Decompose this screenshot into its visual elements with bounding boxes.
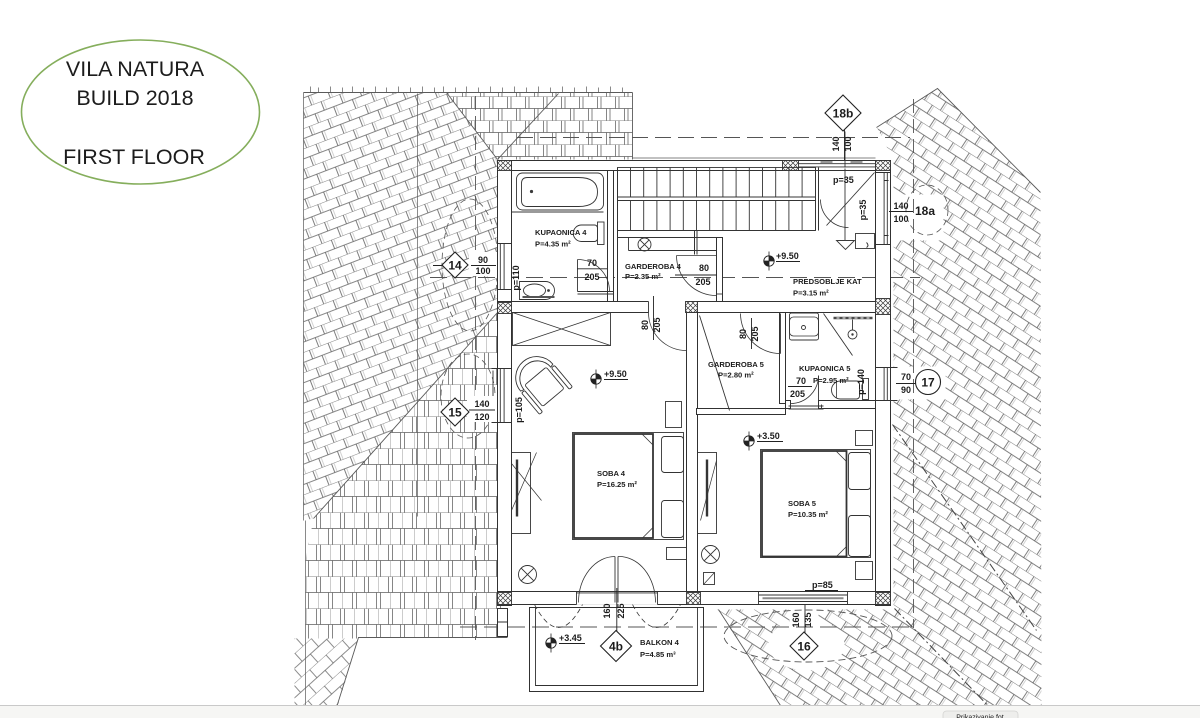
svg-text:GARDEROBA 4: GARDEROBA 4 [625,262,682,271]
svg-text:p=110: p=110 [511,265,521,290]
svg-text:140: 140 [831,136,841,151]
svg-text:120: 120 [474,412,489,422]
svg-text:Prikazivanje fot: Prikazivanje fot [956,715,1004,718]
svg-text:FIRST FLOOR: FIRST FLOOR [63,145,205,169]
svg-text:18b: 18b [833,107,854,121]
svg-text:BUILD 2018: BUILD 2018 [76,86,193,110]
svg-text:160: 160 [791,612,801,627]
svg-text:135: 135 [803,612,813,627]
svg-text:18a: 18a [915,204,935,218]
svg-text:P=2.95 m²: P=2.95 m² [813,376,849,385]
svg-text:p=35: p=35 [833,175,854,185]
svg-text:P=4.85 m³: P=4.85 m³ [640,650,676,659]
svg-text:4b: 4b [609,640,623,654]
svg-text:70: 70 [587,258,597,268]
svg-text:KUPAONICA 4: KUPAONICA 4 [535,228,587,237]
svg-text:90: 90 [901,385,911,395]
svg-text:100: 100 [893,214,908,224]
svg-text:140: 140 [474,399,489,409]
svg-text:70: 70 [901,372,911,382]
svg-text:BALKON 4: BALKON 4 [640,638,680,647]
svg-text:SOBA 5: SOBA 5 [788,499,817,508]
svg-text:+9.50: +9.50 [604,369,627,379]
svg-text:VILA NATURA: VILA NATURA [66,57,205,81]
svg-text:15: 15 [448,406,462,420]
svg-text:80: 80 [699,263,709,273]
svg-text:140: 140 [893,201,908,211]
svg-text:80: 80 [640,320,650,330]
svg-text:p=140: p=140 [856,369,866,395]
svg-text:P=4.35 m²: P=4.35 m² [535,240,571,249]
svg-text:P=2.80 m²: P=2.80 m² [718,371,754,380]
svg-text:205: 205 [584,272,599,282]
svg-text:225: 225 [616,603,626,618]
svg-text:16: 16 [797,640,811,654]
svg-text:14: 14 [448,259,462,273]
svg-text:205: 205 [695,277,710,287]
svg-text:17: 17 [921,376,935,390]
svg-text:p=105: p=105 [514,397,524,423]
svg-text:P=10.35 m²: P=10.35 m² [788,510,828,519]
svg-text:90: 90 [478,255,488,265]
svg-text:70: 70 [796,376,806,386]
svg-text:SOBA 4: SOBA 4 [597,469,626,478]
svg-text:+3.50: +3.50 [757,431,780,441]
svg-text:PREDSOBLJE KAT: PREDSOBLJE KAT [793,277,862,286]
svg-text:80: 80 [738,329,748,339]
svg-text:P=16.25 m²: P=16.25 m² [597,480,637,489]
svg-text:p=35: p=35 [858,200,868,221]
svg-text:KUPAONICA 5: KUPAONICA 5 [799,364,851,373]
svg-text:P=2.35 m²: P=2.35 m² [625,272,661,281]
svg-text:100: 100 [475,266,490,276]
svg-text:205: 205 [790,389,805,399]
svg-text:160: 160 [602,603,612,618]
svg-text:+9.50: +9.50 [776,251,799,261]
svg-text:p=85: p=85 [812,580,833,590]
svg-text:GARDEROBA 5: GARDEROBA 5 [708,360,765,369]
svg-text:P=3.15 m²: P=3.15 m² [793,289,829,298]
svg-text:+3.45: +3.45 [559,633,582,643]
